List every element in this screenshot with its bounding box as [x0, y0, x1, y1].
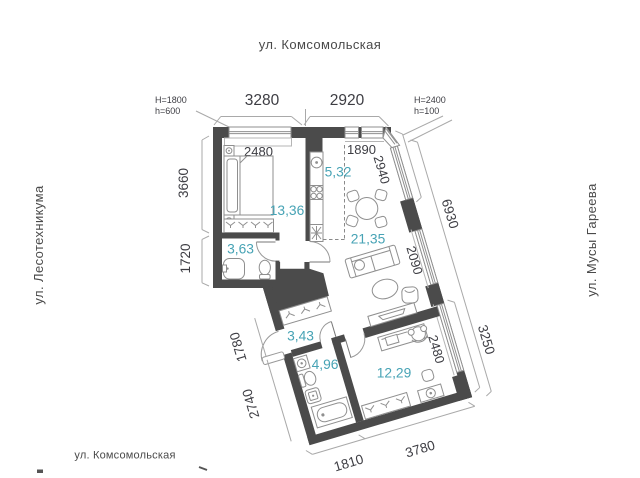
svg-text:ул. Комсомольская: ул. Комсомольская: [259, 37, 381, 52]
svg-text:3,63: 3,63: [227, 242, 254, 257]
svg-text:13,36: 13,36: [270, 203, 305, 218]
svg-text:ул. Комсомольская: ул. Комсомольская: [74, 450, 175, 462]
svg-text:ул. Мусы Гареева: ул. Мусы Гареева: [584, 183, 599, 297]
svg-text:1890: 1890: [347, 142, 376, 157]
svg-text:3280: 3280: [245, 92, 280, 109]
svg-text:H=2400: H=2400: [414, 95, 446, 105]
svg-text:21,35: 21,35: [351, 232, 386, 247]
svg-text:h=100: h=100: [414, 106, 439, 116]
svg-text:3660: 3660: [176, 168, 191, 198]
svg-text:2920: 2920: [330, 92, 365, 109]
svg-text:H=1800: H=1800: [155, 95, 187, 105]
svg-text:5,32: 5,32: [325, 165, 352, 180]
svg-text:12,29: 12,29: [377, 366, 412, 381]
svg-text:1720: 1720: [178, 243, 193, 273]
svg-text:3,43: 3,43: [287, 329, 314, 344]
svg-text:ул. Лесотехникума: ул. Лесотехникума: [31, 185, 46, 305]
svg-text:h=600: h=600: [155, 106, 180, 116]
svg-text:4,96: 4,96: [312, 357, 339, 372]
